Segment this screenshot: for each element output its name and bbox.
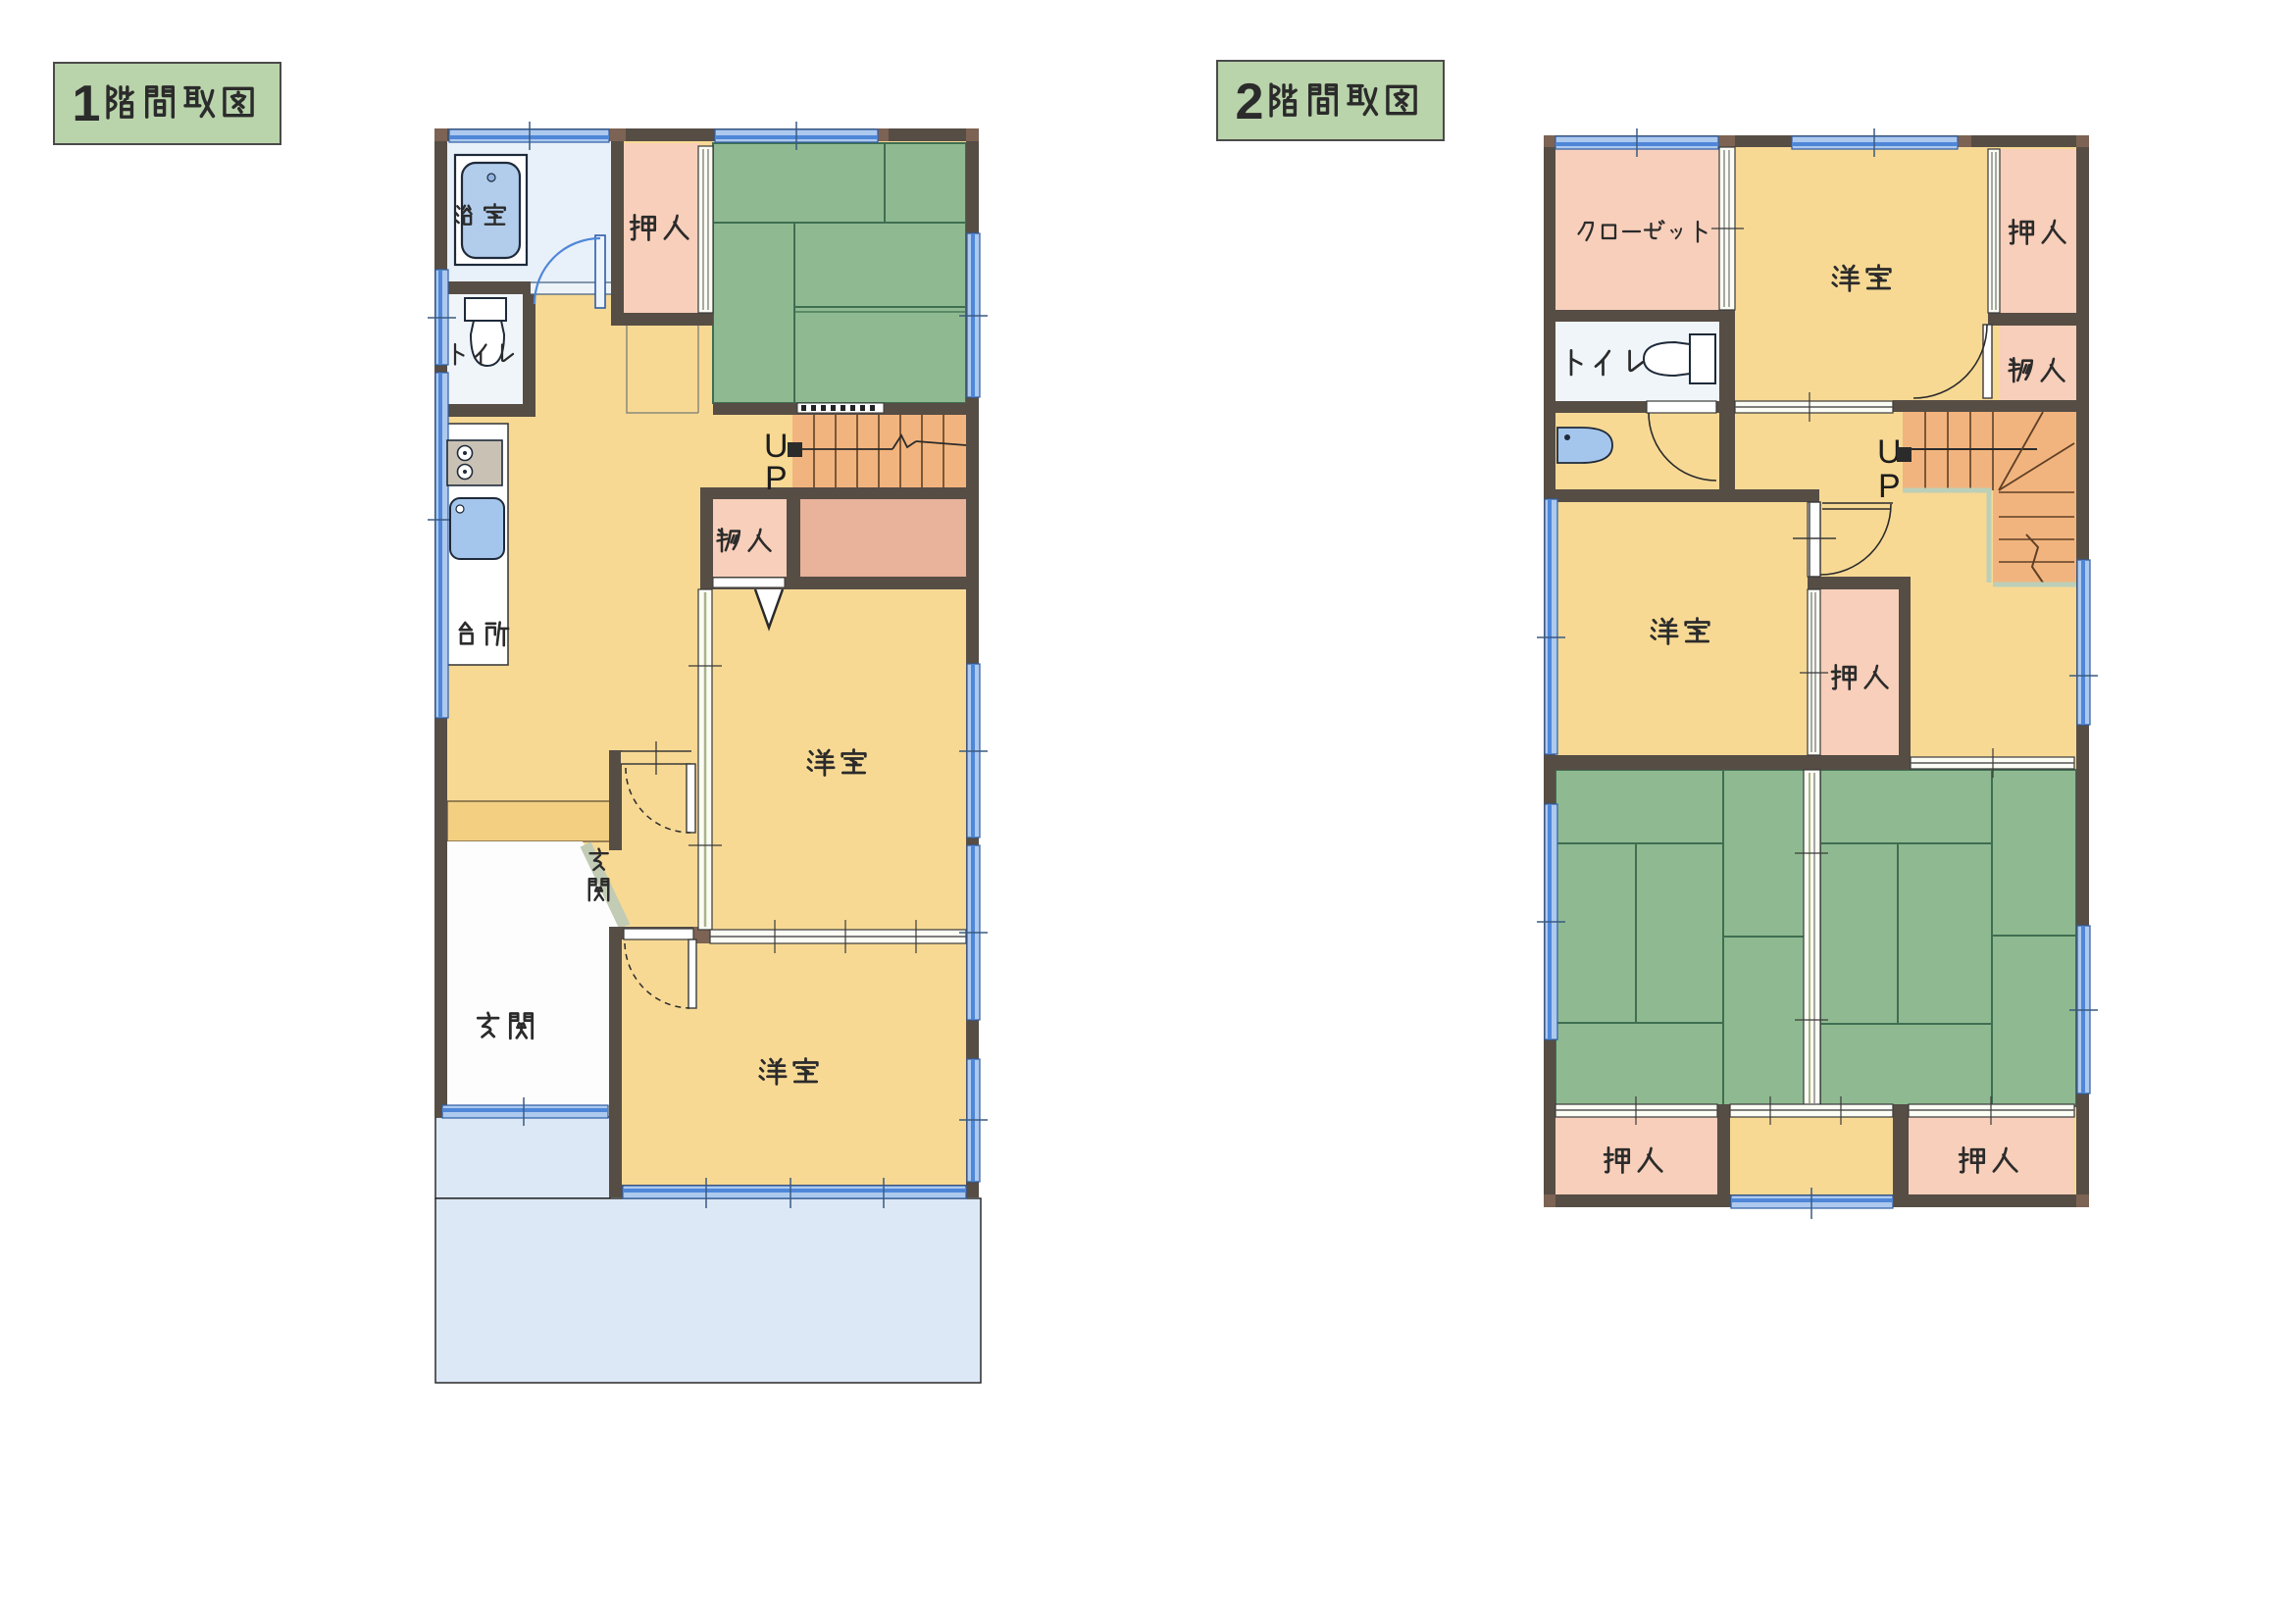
svg-text:2: 2 [1236, 74, 1264, 130]
svg-text:P: P [1878, 468, 1901, 505]
svg-text:1: 1 [73, 76, 101, 132]
svg-text:P: P [765, 460, 788, 497]
